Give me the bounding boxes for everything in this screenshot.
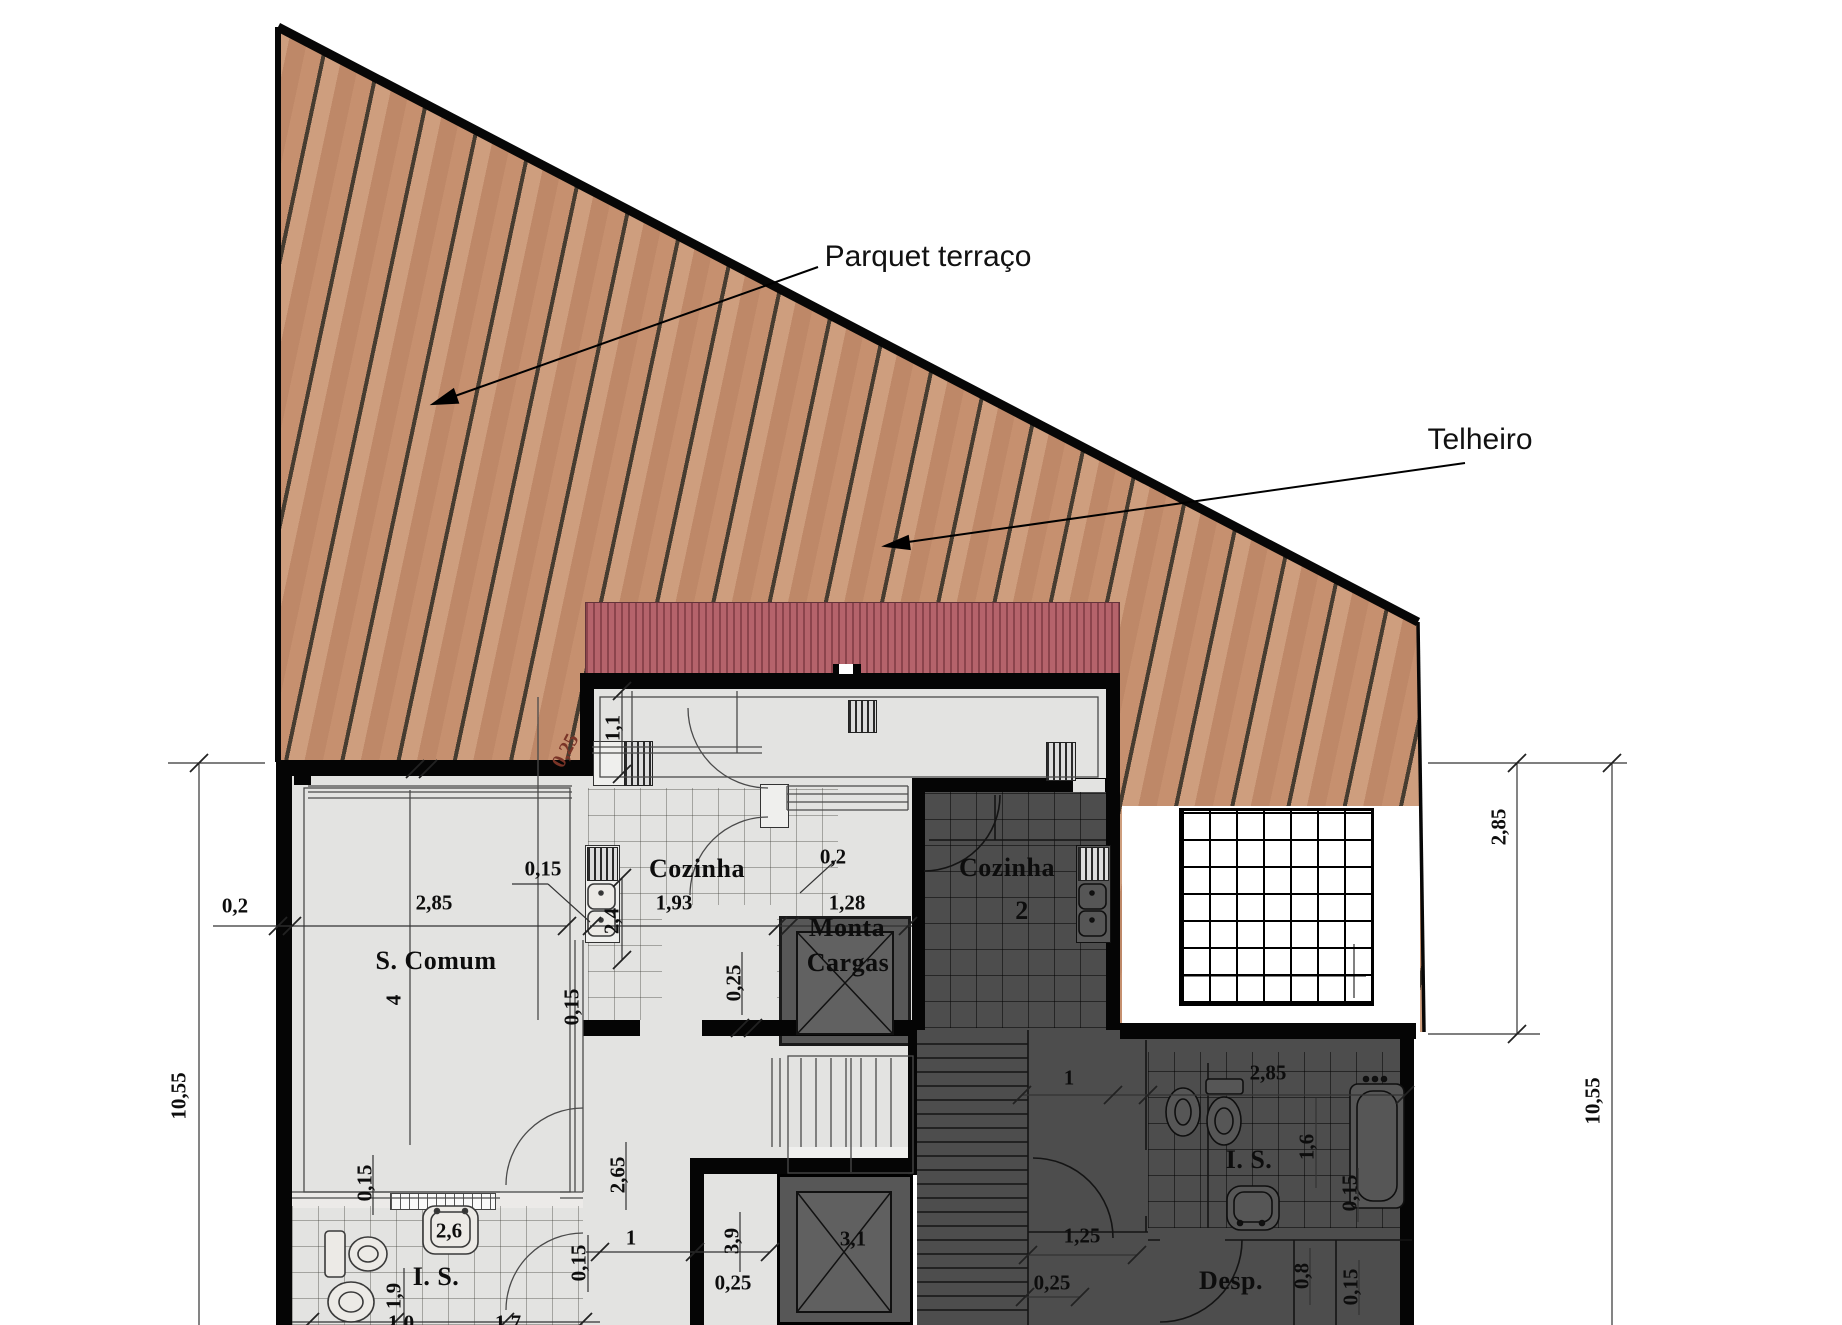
dim-0-15-v1: 0,15 (560, 989, 585, 1026)
label-room-monta: Monta (809, 913, 885, 943)
dim-2-65: 2,65 (606, 1157, 631, 1194)
dim-3-1-elevator: 3,1 (840, 1227, 866, 1252)
dim-1-dark: 1 (1064, 1066, 1075, 1091)
dim-1-93-cozinha: 1,93 (656, 891, 693, 916)
label-room-is-1: I. S. (413, 1262, 460, 1292)
floor-plan: Parquet terraço Telheiro S. Comum4Cozinh… (0, 0, 1842, 1325)
dim-1-25: 1,25 (1064, 1224, 1101, 1249)
label-room-cargas: Cargas (807, 948, 889, 978)
dim-2-85-is2: 2,85 (1250, 1061, 1287, 1086)
dim-0-2-monta: 0,2 (820, 845, 846, 870)
label-room-cozinha-1: Cozinha (649, 854, 745, 884)
dim-0-8: 0,8 (1290, 1263, 1315, 1289)
dim-1-7-cut: 1,7 (495, 1311, 521, 1325)
label-room-s-comum: S. Comum (375, 946, 496, 976)
dim-10-55-right: 10,55 (1581, 1077, 1606, 1124)
dim-10-55-left: 10,55 (167, 1072, 192, 1119)
dim-0-25-v: 0,25 (722, 965, 747, 1002)
dim-1-6: 1,6 (1295, 1134, 1320, 1160)
label-parquet-terraco: Parquet terraço (825, 240, 1032, 274)
dim-2-4: 2,4 (600, 908, 625, 934)
dim-0-15-desp: 0,15 (1339, 1269, 1364, 1306)
label-room-cozinha-2: Cozinha (959, 853, 1055, 883)
dim-2-85-right: 2,85 (1487, 809, 1512, 846)
dim-1-corridor: 1 (626, 1226, 637, 1251)
label-room-desp: Desp. (1199, 1266, 1263, 1296)
dim-2-85-scomum: 2,85 (416, 891, 453, 916)
label-room-cozinha-2-num: 2 (1015, 896, 1029, 926)
dim-3-9: 3,9 (720, 1228, 745, 1254)
dim-0-15-is2: 0,15 (1338, 1175, 1363, 1212)
label-room-is-2: I. S. (1226, 1145, 1273, 1175)
label-room-4: 4 (382, 995, 407, 1006)
dim-1-9: 1,9 (382, 1283, 407, 1309)
dim-0-15-corr: 0,15 (567, 1245, 592, 1282)
plan-linework (0, 0, 1842, 1325)
dim-2-6: 2,6 (436, 1219, 462, 1244)
dim-0-25-dark: 0,25 (1034, 1271, 1071, 1296)
dim-0-2-left: 0,2 (222, 894, 248, 919)
dim-0-25-stair: 0,25 (715, 1271, 752, 1296)
label-telheiro: Telheiro (1427, 423, 1532, 457)
dim-1-28-monta: 1,28 (829, 891, 866, 916)
dim-0-15-bath1: 0,15 (353, 1165, 378, 1202)
dim-1-0-cut: 1,0 (388, 1311, 414, 1325)
dim-0-15-wall: 0,15 (525, 857, 562, 882)
dim-1-1: 1,1 (601, 715, 626, 741)
